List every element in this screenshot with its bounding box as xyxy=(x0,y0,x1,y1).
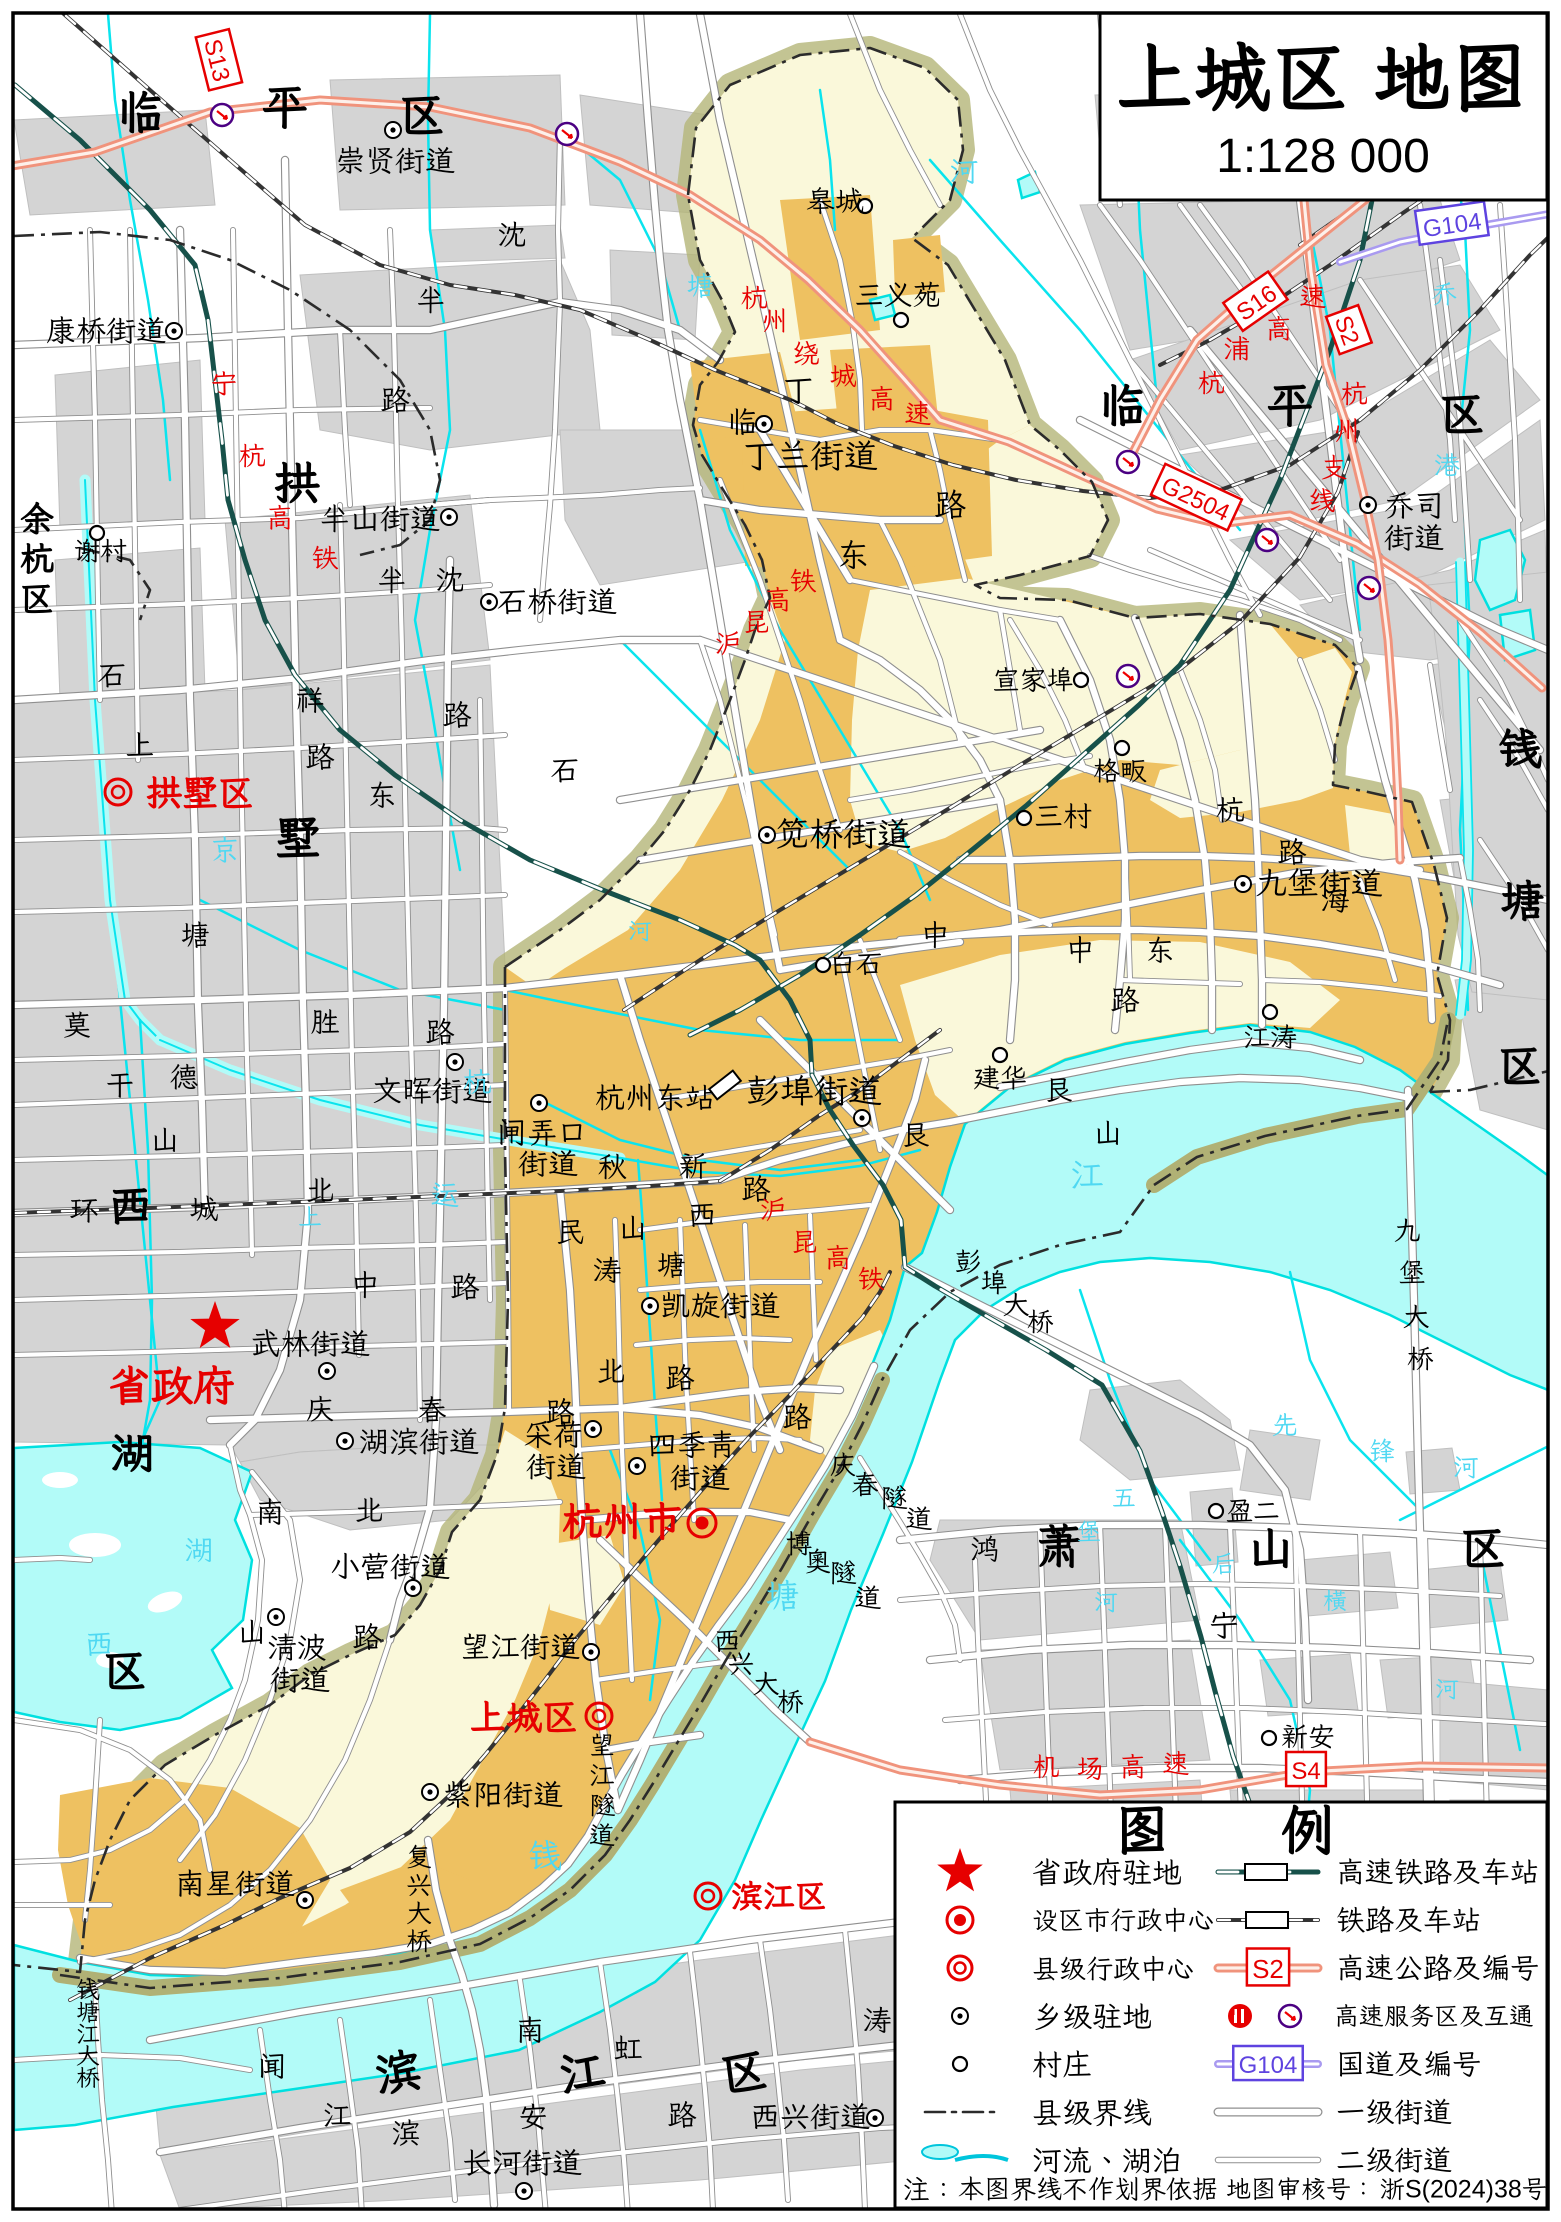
svg-text:机: 机 xyxy=(1033,1748,1060,1784)
svg-text:宁: 宁 xyxy=(1209,1605,1239,1645)
svg-text:街道: 街道 xyxy=(1384,517,1444,557)
svg-text:乔: 乔 xyxy=(1431,277,1457,311)
svg-text:国道及编号: 国道及编号 xyxy=(1336,2045,1481,2083)
svg-text:路: 路 xyxy=(665,1359,694,1397)
svg-text:1:128 000: 1:128 000 xyxy=(1216,122,1430,186)
svg-text:塘: 塘 xyxy=(687,267,714,303)
svg-text:德: 德 xyxy=(169,1058,198,1096)
svg-text:南: 南 xyxy=(515,2011,544,2049)
svg-text:临: 临 xyxy=(727,401,757,441)
svg-text:干: 干 xyxy=(105,1066,134,1104)
svg-text:S2: S2 xyxy=(1252,1952,1284,1986)
svg-text:路: 路 xyxy=(782,1398,811,1436)
svg-text:中: 中 xyxy=(350,1266,379,1304)
svg-text:桥: 桥 xyxy=(406,1924,432,1958)
svg-text:西: 西 xyxy=(687,1196,716,1234)
svg-text:丁: 丁 xyxy=(782,369,814,411)
svg-text:河: 河 xyxy=(1435,1672,1459,1704)
svg-text:环: 环 xyxy=(69,1191,98,1229)
svg-text:桥: 桥 xyxy=(76,2061,100,2093)
svg-text:谢村: 谢村 xyxy=(73,532,127,568)
svg-text:路: 路 xyxy=(1277,833,1306,871)
svg-text:大: 大 xyxy=(1403,1298,1430,1334)
svg-text:杭: 杭 xyxy=(239,437,266,473)
svg-text:崇贤街道: 崇贤街道 xyxy=(335,140,455,180)
svg-text:五: 五 xyxy=(1112,1481,1136,1513)
svg-text:高: 高 xyxy=(1120,1748,1147,1784)
svg-text:堡: 堡 xyxy=(1399,1254,1426,1290)
svg-text:墅: 墅 xyxy=(275,808,321,868)
svg-text:堡: 堡 xyxy=(1077,1515,1101,1547)
svg-text:小营街道: 小营街道 xyxy=(330,1546,450,1586)
svg-text:路: 路 xyxy=(352,1618,381,1656)
svg-text:浙S(2024)38号: 浙S(2024)38号 xyxy=(1380,2173,1547,2206)
svg-text:望江街道: 望江街道 xyxy=(460,1626,580,1666)
svg-text:路: 路 xyxy=(425,1013,454,1051)
svg-text:街道: 街道 xyxy=(270,1659,330,1699)
svg-text:乡级驻地: 乡级驻地 xyxy=(1032,1996,1152,2036)
svg-text:高: 高 xyxy=(869,380,896,416)
svg-text:路: 路 xyxy=(667,2096,696,2134)
svg-text:后: 后 xyxy=(1212,1547,1236,1579)
svg-text:道: 道 xyxy=(906,1500,933,1536)
svg-text:三义苑: 三义苑 xyxy=(854,276,941,314)
svg-text:南: 南 xyxy=(255,1493,284,1531)
svg-text:艮: 艮 xyxy=(1043,1071,1072,1109)
svg-text:滨: 滨 xyxy=(391,2114,420,2152)
svg-text:铁路及车站: 铁路及车站 xyxy=(1336,1901,1481,1939)
svg-text:河: 河 xyxy=(949,152,978,190)
svg-text:三村: 三村 xyxy=(1034,797,1092,835)
svg-text:沪: 沪 xyxy=(760,1191,787,1227)
svg-text:鸿: 鸿 xyxy=(970,1530,999,1568)
svg-text:村庄: 村庄 xyxy=(1032,2044,1092,2084)
svg-text:路: 路 xyxy=(442,696,471,734)
svg-text:S4: S4 xyxy=(1291,1754,1320,1786)
svg-text:塘: 塘 xyxy=(656,1246,685,1284)
svg-text:北: 北 xyxy=(596,1352,625,1390)
svg-text:设区市行政中心: 设区市行政中心 xyxy=(1032,1903,1214,1937)
svg-text:上: 上 xyxy=(125,726,154,764)
svg-text:桥: 桥 xyxy=(1027,1303,1054,1339)
svg-text:道: 道 xyxy=(855,1579,882,1615)
svg-text:祥: 祥 xyxy=(295,681,324,719)
svg-text:塘: 塘 xyxy=(180,916,209,954)
svg-text:路: 路 xyxy=(305,738,334,776)
svg-text:江涛: 江涛 xyxy=(1243,1018,1297,1054)
svg-text:平: 平 xyxy=(1267,375,1313,435)
svg-text:盈二: 盈二 xyxy=(1226,1492,1280,1528)
svg-text:高: 高 xyxy=(825,1239,852,1275)
svg-text:钱: 钱 xyxy=(1498,719,1542,777)
svg-text:西: 西 xyxy=(108,1176,152,1234)
svg-text:平: 平 xyxy=(262,77,308,137)
svg-text:彭: 彭 xyxy=(955,1243,982,1279)
svg-text:杭: 杭 xyxy=(462,1063,491,1101)
svg-text:杭: 杭 xyxy=(20,536,55,581)
svg-text:滨: 滨 xyxy=(371,2039,425,2105)
svg-text:城: 城 xyxy=(830,357,857,393)
svg-text:笕桥街道: 笕桥街道 xyxy=(775,811,911,856)
svg-text:民: 民 xyxy=(555,1213,584,1251)
svg-text:沈: 沈 xyxy=(435,561,464,599)
svg-text:宁: 宁 xyxy=(211,365,238,401)
svg-text:塘: 塘 xyxy=(765,1573,799,1618)
svg-text:中: 中 xyxy=(920,916,949,954)
svg-text:县级行政中心: 县级行政中心 xyxy=(1032,1950,1194,1986)
svg-text:例: 例 xyxy=(1281,1794,1335,1865)
svg-text:路: 路 xyxy=(934,484,967,526)
svg-text:涛: 涛 xyxy=(592,1251,621,1289)
svg-text:杭: 杭 xyxy=(1341,375,1368,411)
svg-text:紫阳街道: 紫阳街道 xyxy=(443,1774,563,1814)
svg-text:高速服务区及互通: 高速服务区及互通 xyxy=(1334,2000,1534,2033)
svg-text:山: 山 xyxy=(150,1121,179,1159)
svg-text:铁: 铁 xyxy=(790,562,817,598)
svg-text:京: 京 xyxy=(210,831,239,869)
svg-text:本图界线不作划界依据: 本图界线不作划界依据 xyxy=(958,2172,1218,2206)
svg-text:余: 余 xyxy=(20,496,54,541)
svg-text:武林街道: 武林街道 xyxy=(250,1323,370,1363)
svg-text:铁: 铁 xyxy=(858,1260,885,1296)
svg-text:望: 望 xyxy=(589,1728,615,1762)
svg-text:九: 九 xyxy=(1394,1212,1421,1248)
svg-text:新安: 新安 xyxy=(1281,1718,1335,1754)
svg-text:上城区: 上城区 xyxy=(470,1694,578,1741)
svg-text:秋: 秋 xyxy=(597,1148,626,1186)
svg-text:丁兰街道: 丁兰街道 xyxy=(742,433,878,478)
svg-text:高速铁路及车站: 高速铁路及车站 xyxy=(1336,1853,1539,1891)
svg-text:闻: 闻 xyxy=(257,2047,286,2085)
svg-text:支: 支 xyxy=(1321,449,1348,485)
svg-text:速: 速 xyxy=(1300,278,1327,314)
svg-text:高速公路及编号: 高速公路及编号 xyxy=(1336,1949,1539,1987)
svg-text:白石: 白石 xyxy=(829,945,883,981)
svg-text:长河街道: 长河街道 xyxy=(462,2142,582,2182)
svg-text:港: 港 xyxy=(1434,448,1460,482)
svg-text:先: 先 xyxy=(1272,1408,1298,1442)
svg-text:桥: 桥 xyxy=(1407,1340,1434,1376)
svg-text:高: 高 xyxy=(1266,310,1293,346)
svg-text:湖: 湖 xyxy=(111,1423,155,1481)
svg-text:滨江区: 滨江区 xyxy=(731,1875,827,1917)
svg-text:大: 大 xyxy=(1003,1286,1030,1322)
svg-text:路: 路 xyxy=(380,381,409,419)
svg-text:石: 石 xyxy=(97,656,126,694)
svg-text:临: 临 xyxy=(117,82,163,142)
svg-text:上: 上 xyxy=(298,1200,322,1232)
svg-text:奥: 奥 xyxy=(805,1543,832,1579)
svg-text:隧: 隧 xyxy=(589,1788,615,1822)
svg-text:石桥街道: 石桥街道 xyxy=(497,581,617,621)
svg-text:速: 速 xyxy=(905,395,932,431)
svg-text:九堡街道: 九堡街道 xyxy=(1255,862,1383,904)
svg-text:虹: 虹 xyxy=(613,2029,642,2067)
svg-text:艮: 艮 xyxy=(900,1116,929,1154)
svg-text:拱墅区: 拱墅区 xyxy=(146,770,254,817)
svg-text:区: 区 xyxy=(1498,1036,1542,1094)
svg-text:街道: 街道 xyxy=(526,1446,586,1486)
svg-text:路: 路 xyxy=(450,1268,479,1306)
svg-text:州: 州 xyxy=(1334,412,1361,448)
svg-text:安: 安 xyxy=(518,2098,547,2136)
svg-text:地图审核号：: 地图审核号： xyxy=(1226,2173,1376,2206)
svg-text:春: 春 xyxy=(852,1466,879,1502)
svg-text:昆: 昆 xyxy=(791,1223,818,1259)
svg-text:路: 路 xyxy=(545,1393,574,1431)
svg-text:庆: 庆 xyxy=(305,1390,334,1428)
svg-text:州: 州 xyxy=(762,302,789,338)
svg-text:桥: 桥 xyxy=(777,1683,804,1719)
svg-text:区: 区 xyxy=(1460,1518,1506,1578)
svg-text:省政府: 省政府 xyxy=(109,1358,235,1413)
svg-text:杭州东站: 杭州东站 xyxy=(595,1077,715,1117)
svg-text:速: 速 xyxy=(1163,1745,1190,1781)
svg-text:线: 线 xyxy=(1309,482,1336,518)
svg-text:城: 城 xyxy=(189,1190,218,1228)
svg-text:半山街道: 半山街道 xyxy=(320,498,440,538)
svg-text:西兴街道: 西兴街道 xyxy=(750,2096,870,2136)
svg-text:半: 半 xyxy=(377,561,406,599)
svg-text:区: 区 xyxy=(20,576,54,621)
svg-text:运: 运 xyxy=(430,1176,459,1214)
svg-text:县级界线: 县级界线 xyxy=(1032,2092,1152,2132)
svg-text:钱: 钱 xyxy=(528,1833,562,1878)
svg-text:春: 春 xyxy=(417,1391,446,1429)
svg-text:场: 场 xyxy=(1077,1750,1104,1786)
svg-text:河: 河 xyxy=(1453,1450,1479,1484)
svg-text:建华: 建华 xyxy=(973,1059,1027,1095)
svg-text:胜: 胜 xyxy=(310,1003,339,1041)
svg-text:北: 北 xyxy=(354,1491,383,1529)
svg-text:杭: 杭 xyxy=(1215,791,1244,829)
svg-text:莫: 莫 xyxy=(62,1006,91,1044)
svg-text:皋城: 皋城 xyxy=(806,182,864,220)
svg-text:绕: 绕 xyxy=(793,335,820,371)
svg-text:区: 区 xyxy=(1439,384,1485,444)
svg-text:涛: 涛 xyxy=(862,2001,891,2039)
svg-text:隧: 隧 xyxy=(830,1554,857,1590)
svg-text:江: 江 xyxy=(589,1758,615,1792)
svg-text:海: 海 xyxy=(1320,881,1349,919)
svg-text:街道: 街道 xyxy=(670,1457,730,1497)
svg-text:东: 东 xyxy=(837,534,869,576)
svg-text:东: 东 xyxy=(367,776,396,814)
svg-text:沈: 沈 xyxy=(497,216,526,254)
svg-text:山: 山 xyxy=(618,1209,647,1247)
svg-text:宣家埠: 宣家埠 xyxy=(993,661,1074,697)
svg-text:高: 高 xyxy=(267,499,294,535)
svg-text:街道: 街道 xyxy=(518,1143,578,1183)
svg-text:河: 河 xyxy=(1094,1585,1118,1617)
svg-text:兴: 兴 xyxy=(728,1645,755,1681)
svg-text:中: 中 xyxy=(1065,931,1094,969)
svg-text:彭埠街道: 彭埠街道 xyxy=(746,1068,882,1113)
svg-text:大: 大 xyxy=(753,1665,780,1701)
svg-text:湖: 湖 xyxy=(184,1531,213,1569)
svg-text:省政府驻地: 省政府驻地 xyxy=(1032,1852,1182,1892)
svg-text:江: 江 xyxy=(1070,1152,1104,1197)
svg-text:横: 横 xyxy=(1323,1584,1347,1616)
svg-text:西: 西 xyxy=(84,1625,113,1663)
svg-text:塘: 塘 xyxy=(1500,871,1544,929)
svg-text:凯旋街道: 凯旋街道 xyxy=(660,1285,780,1325)
svg-text:康桥街道: 康桥街道 xyxy=(46,310,166,350)
svg-text:临: 临 xyxy=(1099,375,1145,435)
svg-text:山: 山 xyxy=(237,1613,266,1651)
svg-text:昆: 昆 xyxy=(743,603,770,639)
svg-text:东: 东 xyxy=(1145,931,1174,969)
svg-text:锋: 锋 xyxy=(1369,1434,1395,1468)
svg-text:南星街道: 南星街道 xyxy=(175,1863,295,1903)
svg-text:铁: 铁 xyxy=(312,539,339,575)
svg-text:浦: 浦 xyxy=(1224,330,1251,366)
svg-text:沪: 沪 xyxy=(715,625,742,661)
svg-text:区: 区 xyxy=(399,85,445,145)
svg-text:石: 石 xyxy=(550,751,579,789)
svg-text:河: 河 xyxy=(628,914,652,946)
svg-text:一级街道: 一级街道 xyxy=(1336,2093,1452,2131)
svg-text:上城区 地图: 上城区 地图 xyxy=(1116,26,1529,126)
svg-text:新: 新 xyxy=(678,1147,707,1185)
svg-text:杭州市: 杭州市 xyxy=(562,1495,682,1547)
svg-text:格畈: 格畈 xyxy=(1093,752,1147,788)
svg-text:G104: G104 xyxy=(1239,2048,1298,2080)
svg-text:杭: 杭 xyxy=(1198,364,1225,400)
svg-text:江: 江 xyxy=(322,2096,351,2134)
svg-text:路: 路 xyxy=(1110,981,1139,1019)
svg-text:隧: 隧 xyxy=(881,1479,908,1515)
svg-text:萧: 萧 xyxy=(1036,1516,1082,1576)
svg-text:道: 道 xyxy=(589,1818,615,1852)
svg-text:半: 半 xyxy=(416,281,445,319)
svg-text:注：: 注： xyxy=(903,2171,957,2207)
svg-text:江: 江 xyxy=(555,2039,609,2105)
svg-text:山: 山 xyxy=(1093,1114,1122,1152)
